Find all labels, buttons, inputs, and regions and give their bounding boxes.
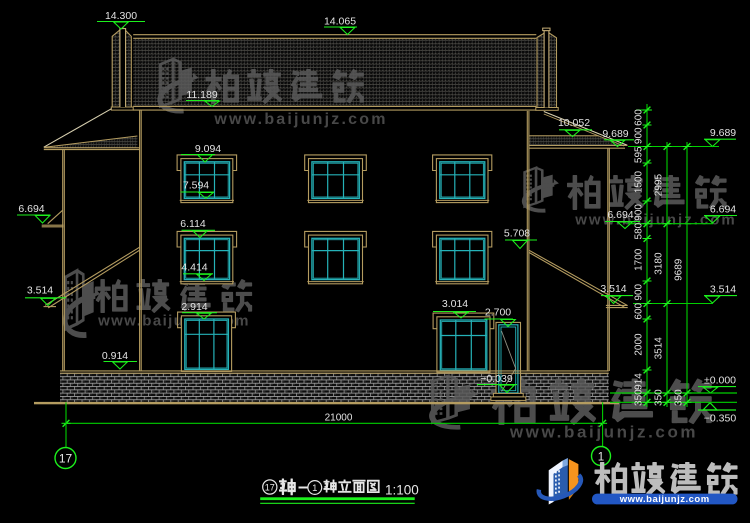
svg-text:600: 600 [634, 302, 645, 319]
svg-text:914: 914 [634, 373, 645, 390]
svg-text:580: 580 [634, 222, 645, 239]
svg-text:14.065: 14.065 [324, 16, 356, 28]
svg-text:10.052: 10.052 [558, 117, 590, 129]
svg-text:3514: 3514 [654, 337, 665, 360]
svg-text:21000: 21000 [325, 413, 353, 424]
svg-text:1: 1 [312, 483, 317, 494]
svg-text:5.708: 5.708 [504, 228, 530, 240]
svg-text:±0.000: ±0.000 [704, 375, 736, 387]
svg-text:350: 350 [634, 389, 645, 406]
svg-text:3180: 3180 [654, 252, 665, 275]
svg-text:9.689: 9.689 [602, 128, 628, 140]
svg-text:3.514: 3.514 [710, 284, 736, 296]
svg-text:14.300: 14.300 [105, 10, 137, 22]
svg-text:9.689: 9.689 [710, 127, 736, 139]
svg-text:2.914: 2.914 [181, 301, 207, 313]
svg-text:6.114: 6.114 [180, 218, 206, 230]
svg-text:17: 17 [59, 452, 73, 466]
svg-text:3.014: 3.014 [442, 298, 468, 310]
svg-text:600: 600 [634, 109, 645, 126]
svg-text:6.694: 6.694 [710, 204, 736, 216]
svg-text:595: 595 [634, 146, 645, 163]
svg-text:9689: 9689 [674, 258, 685, 281]
svg-text:6.694: 6.694 [18, 203, 44, 215]
svg-text:2.700: 2.700 [485, 307, 511, 319]
svg-text:4.414: 4.414 [181, 262, 207, 274]
svg-text:−0.350: −0.350 [704, 413, 737, 425]
svg-text:www.baijunjz.com: www.baijunjz.com [619, 494, 710, 505]
svg-text:6.694: 6.694 [607, 209, 633, 221]
svg-text:2000: 2000 [634, 333, 645, 356]
svg-text:350: 350 [674, 389, 685, 406]
svg-text:7.594: 7.594 [183, 180, 209, 192]
svg-text:900: 900 [634, 204, 645, 221]
svg-text:www.baijunjz.com: www.baijunjz.com [509, 423, 698, 442]
svg-text:−0.039: −0.039 [480, 373, 513, 385]
svg-text:0.914: 0.914 [102, 350, 128, 362]
svg-text:900: 900 [634, 283, 645, 300]
svg-text:11.189: 11.189 [186, 89, 217, 101]
svg-text:3.514: 3.514 [27, 285, 53, 297]
svg-text:1700: 1700 [634, 248, 645, 271]
svg-text:3.514: 3.514 [600, 283, 626, 295]
svg-text:900: 900 [634, 127, 645, 144]
svg-text:1:100: 1:100 [385, 483, 419, 498]
svg-text:www.baijunjz.com: www.baijunjz.com [213, 111, 387, 128]
svg-text:1500: 1500 [634, 170, 645, 193]
svg-text:350: 350 [654, 389, 665, 406]
svg-text:17: 17 [265, 483, 275, 493]
svg-text:9.094: 9.094 [195, 143, 221, 155]
svg-text:2995: 2995 [654, 174, 665, 197]
svg-text:1: 1 [598, 452, 604, 464]
